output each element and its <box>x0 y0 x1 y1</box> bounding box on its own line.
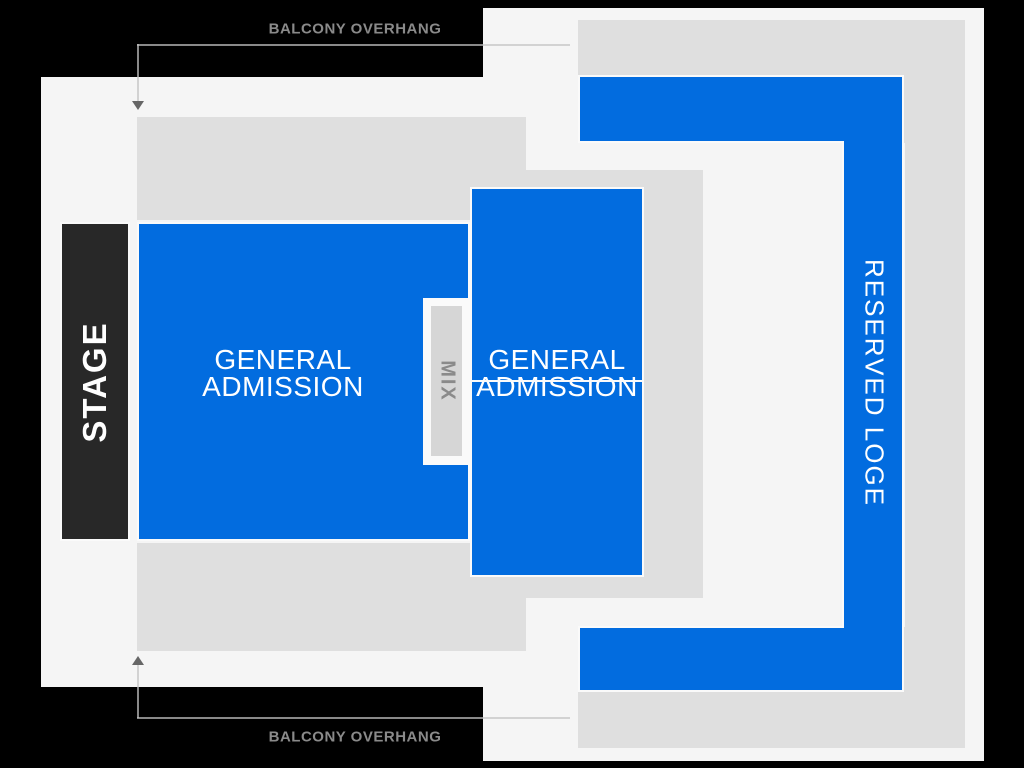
ga-right-label: GENERAL ADMISSION <box>476 346 638 400</box>
mix-booth-inner: MIX <box>431 306 462 456</box>
ga-main-label: GENERAL ADMISSION <box>202 346 364 400</box>
top-leader-line-horizontal <box>137 44 570 46</box>
stage: STAGE <box>60 222 130 541</box>
balcony-overhang-top-label: BALCONY OVERHANG <box>269 21 442 38</box>
venue-seat-map: GENERAL ADMISSION GENERAL ADMISSION STAG… <box>0 0 1024 768</box>
bottom-leader-line-vertical <box>137 665 139 718</box>
balcony-overhang-region-top <box>137 117 526 220</box>
arrow-up-icon <box>132 656 144 665</box>
stage-label: STAGE <box>76 321 114 442</box>
ga-main-label-line2: ADMISSION <box>202 373 364 400</box>
ga-right-label-line1: GENERAL <box>476 346 638 373</box>
section-general-admission-main[interactable]: GENERAL ADMISSION <box>137 222 470 541</box>
mix-label: MIX <box>435 360 458 402</box>
ga-divider-line <box>472 380 642 382</box>
arrow-down-icon <box>132 101 144 110</box>
bottom-leader-line-horizontal <box>137 717 570 719</box>
top-leader-line-vertical <box>137 44 139 101</box>
balcony-overhang-bottom-label: BALCONY OVERHANG <box>269 729 442 746</box>
ga-main-label-line1: GENERAL <box>202 346 364 373</box>
section-general-admission-right[interactable]: GENERAL ADMISSION <box>470 187 644 577</box>
balcony-overhang-region-bottom <box>137 543 526 651</box>
reserved-loge-label: RESERVED LOGE <box>859 259 890 507</box>
mix-booth: MIX <box>423 298 470 465</box>
ga-right-label-line2: ADMISSION <box>476 373 638 400</box>
